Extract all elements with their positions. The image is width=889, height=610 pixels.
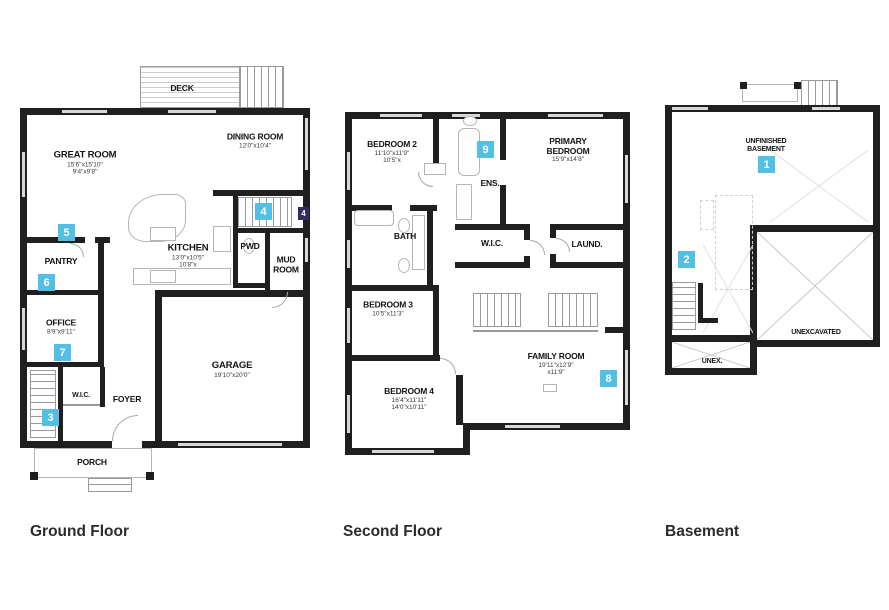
room-dim: 10'5"x11'3" [363,310,413,317]
wall [698,283,703,323]
wall [155,297,162,441]
wall [550,224,623,230]
porch-post [30,472,38,480]
room-name: DINING ROOM [227,133,283,143]
wall [233,228,238,288]
room-name: BEDROOM 2 [367,140,417,150]
room-label-bedroom3: BEDROOM 3 10'5"x11'3" [363,301,413,318]
floorplan-sheet: DECK [0,0,889,610]
room-label-wic2: W.I.C. [481,239,503,249]
window [672,107,708,110]
exterior-stairs [801,80,838,106]
hotspot-badge-8[interactable]: 8 [600,370,617,387]
window [505,425,560,428]
wall [550,262,623,268]
wall [352,285,433,291]
room-label-deck: DECK [170,84,193,94]
window [548,114,603,117]
room-name: UNEXCAVATED [791,329,841,337]
hotspot-badge-4[interactable]: 4 [255,203,272,220]
future-area-cross [770,150,868,222]
wall [757,340,880,347]
wall [605,327,623,333]
window [625,350,628,405]
room-label-laundry: LAUND. [572,240,603,250]
room-name: MUD ROOM [268,255,304,274]
room-dim: 15'9"x14'8" [537,156,599,163]
window [22,308,25,350]
room-name: W.I.C. [481,239,503,249]
hotspot-badge-1[interactable]: 1 [758,156,775,173]
wall [550,254,556,262]
room-dim: 11'10"x11'9" [367,149,417,156]
wall [665,335,757,342]
room-label-unfinished-basement: UNFINISHED BASEMENT [737,138,795,154]
wall [500,185,506,225]
stairs-up [473,293,521,327]
stairs-down [548,293,598,327]
room-label-unex: UNEX. [702,358,722,366]
door-arc [556,238,570,252]
room-label-office: OFFICE 8'9"x9'11" [46,319,76,336]
room-label-pwd: PWD [240,242,259,252]
kitchen-counter [133,268,231,285]
room-label-bedroom2: BEDROOM 2 11'10"x11'9" 10'5"x [367,140,417,164]
wall [750,225,880,232]
wall [100,367,105,407]
window [22,152,25,197]
wall [433,285,439,360]
room-label-primary-bedroom: PRIMARY BEDROOM 15'9"x14'8" [537,137,599,163]
wall [433,112,439,170]
window [372,450,434,453]
window [812,107,840,110]
room-label-wic: W.I.C. [72,392,90,400]
wall [524,256,530,268]
deck-stairs [240,66,284,108]
room-name: OFFICE [46,319,76,329]
room-name: DECK [170,84,193,94]
room-dim: 12'0"x10'4" [227,142,283,149]
wall [352,355,440,361]
window [347,308,350,343]
room-dim: 9'4"x9'8" [54,168,117,175]
room-name: GARAGE [212,361,253,372]
stove [150,270,176,283]
post [794,82,801,89]
room-label-family-room: FAMILY ROOM 19'11"x12'9" x11'9" [528,352,585,376]
side-door [305,238,308,262]
bath-vanity [412,215,425,270]
ensuite-vanity [456,184,472,220]
fridge [213,226,231,252]
room-dim: 16'4"x11'11" [384,396,434,403]
door-arc [112,415,138,441]
window [347,395,350,433]
wall [463,423,470,455]
kitchen-sink [150,227,176,241]
wall [213,190,310,196]
landing [742,84,798,102]
closet [424,163,446,175]
room-label-kitchen: KITCHEN 13'0"x10'5" 10'8"x [168,243,209,268]
room-label-foyer: FOYER [113,395,141,405]
room-label-bedroom4: BEDROOM 4 16'4"x11'11" 14'0"x10'11" [384,387,434,411]
room-dim: 19'10"x20'0" [212,372,253,379]
stair-railing [473,330,598,332]
room-label-garage: GARAGE 19'10"x20'0" [212,361,253,379]
bathtub [354,210,394,226]
room-name: GREAT ROOM [54,150,117,161]
room-name: PRIMARY BEDROOM [537,137,599,156]
room-dim: 10'5"x [367,157,417,164]
room-name: PANTRY [45,257,78,267]
basement-title: Basement [665,523,739,541]
toilet [463,116,477,126]
post [740,82,747,89]
room-name: FAMILY ROOM [528,352,585,362]
door-arc [530,240,545,255]
porch-post [146,472,154,480]
room-label-unexcavated: UNEXCAVATED [791,329,841,337]
basement-stairs [672,282,696,330]
room-name: FOYER [113,395,141,405]
room-dim: 8'9"x9'11" [46,328,76,335]
room-name: ENS. [480,179,499,189]
unexcavated-cross [757,232,873,340]
room-dim: 15'6"x15'10" [54,161,117,168]
wall [27,237,85,243]
mechanical-area [700,200,714,230]
room-name: LAUND. [572,240,603,250]
wall [98,237,104,367]
wall [500,112,506,160]
window [347,240,350,268]
room-label-pantry: PANTRY [45,257,78,267]
wall [698,318,718,323]
room-label-mud-room: MUD ROOM [268,255,304,274]
room-label-dining-room: DINING ROOM 12'0"x10'4" [227,133,283,150]
room-name: PWD [240,242,259,252]
garage-door [178,443,282,446]
room-name: KITCHEN [168,243,209,254]
room-name: UNFINISHED BASEMENT [737,138,795,154]
room-name: BATH [394,232,416,242]
room-label-great-room: GREAT ROOM 15'6"x15'10" 9'4"x9'8" [54,150,117,175]
hotspot-badge-5[interactable]: 5 [58,224,75,241]
wall [550,230,556,238]
door-arc [70,243,84,257]
window [625,155,628,203]
room-name: BEDROOM 4 [384,387,434,397]
wall [63,404,100,406]
wall [524,224,530,240]
window [62,110,107,113]
ground-floor-title: Ground Floor [30,523,129,541]
room-name: UNEX. [702,358,722,366]
toilet [398,258,410,273]
room-label-ensuite: ENS. [480,179,499,189]
room-name: BEDROOM 3 [363,301,413,311]
hotspot-badge-7[interactable]: 7 [54,344,71,361]
wall [456,375,463,425]
wall [665,368,757,375]
room-dim: 19'11"x12'9" [528,361,585,368]
wall [455,262,530,268]
fireplace-icon [543,384,557,392]
hotspot-badge-6[interactable]: 6 [38,274,55,291]
room-label-bath: BATH [394,232,416,242]
window [305,118,308,170]
porch-steps [88,478,132,492]
hotspot-badge-2[interactable]: 2 [678,251,695,268]
second-floor-title: Second Floor [343,523,442,541]
door-arc [272,292,288,308]
front-door-opening [112,441,142,448]
window [168,110,216,113]
room-name: PORCH [77,458,107,468]
window [347,152,350,190]
room-label-porch: PORCH [77,458,107,468]
room-dim: x11'9" [528,369,585,376]
room-name: W.I.C. [72,392,90,400]
wall [427,205,433,291]
door-arc [440,358,456,374]
wall [455,224,530,230]
mechanical-area [715,195,753,290]
room-dim: 10'8"x [168,261,209,268]
basement-stairs [30,370,56,438]
hotspot-badge-3[interactable]: 3 [42,409,59,426]
hotspot-badge-4-dark[interactable]: 4 [298,207,309,220]
window [380,114,422,117]
hotspot-badge-9[interactable]: 9 [477,141,494,158]
wall [27,362,104,367]
room-dim: 14'0"x10'11" [384,404,434,411]
room-dim: 13'0"x10'5" [168,254,209,261]
